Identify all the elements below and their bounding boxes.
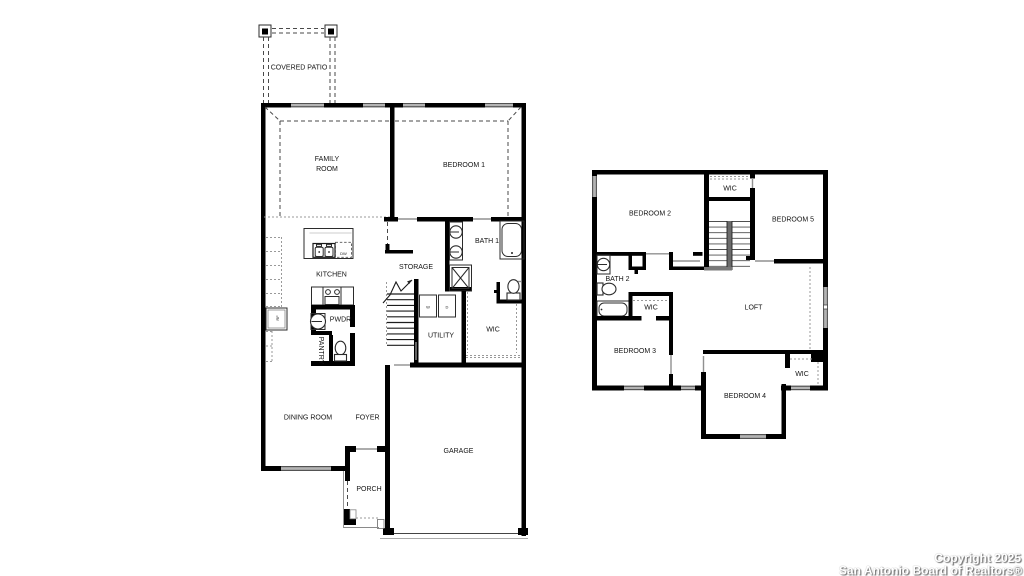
svg-text:WIC: WIC bbox=[644, 305, 658, 312]
svg-text:GARAGE: GARAGE bbox=[444, 448, 474, 455]
svg-text:DW: DW bbox=[340, 251, 347, 256]
svg-text:FOYER: FOYER bbox=[355, 415, 379, 422]
svg-text:ROOM: ROOM bbox=[316, 166, 338, 173]
svg-text:WIC: WIC bbox=[795, 371, 809, 378]
svg-text:RF: RF bbox=[275, 315, 280, 321]
svg-text:PORCH: PORCH bbox=[356, 486, 381, 493]
svg-text:WIC: WIC bbox=[486, 327, 500, 334]
svg-text:FAMILY: FAMILY bbox=[315, 156, 340, 163]
svg-text:PWDR: PWDR bbox=[330, 317, 351, 324]
svg-text:KITCHEN: KITCHEN bbox=[316, 272, 347, 279]
svg-text:BEDROOM 4: BEDROOM 4 bbox=[724, 393, 766, 400]
svg-text:W: W bbox=[426, 305, 430, 310]
svg-text:San Antonio Board of Realtors®: San Antonio Board of Realtors® bbox=[839, 564, 1022, 576]
svg-text:BEDROOM 3: BEDROOM 3 bbox=[614, 348, 656, 355]
svg-text:WIC: WIC bbox=[723, 186, 737, 193]
svg-text:D: D bbox=[446, 305, 449, 310]
svg-text:LOFT: LOFT bbox=[745, 305, 764, 312]
svg-text:STORAGE: STORAGE bbox=[399, 264, 433, 271]
svg-text:BATH 2: BATH 2 bbox=[606, 276, 630, 283]
svg-text:UTILITY: UTILITY bbox=[428, 333, 454, 340]
svg-text:COVERED PATIO: COVERED PATIO bbox=[271, 65, 328, 72]
svg-text:PANTRY: PANTRY bbox=[317, 337, 324, 365]
svg-text:BEDROOM 5: BEDROOM 5 bbox=[772, 217, 814, 224]
svg-text:BEDROOM 1: BEDROOM 1 bbox=[443, 162, 485, 169]
svg-text:DINING ROOM: DINING ROOM bbox=[284, 415, 332, 422]
svg-text:BATH 1: BATH 1 bbox=[475, 238, 499, 245]
svg-text:BEDROOM 2: BEDROOM 2 bbox=[629, 211, 671, 218]
